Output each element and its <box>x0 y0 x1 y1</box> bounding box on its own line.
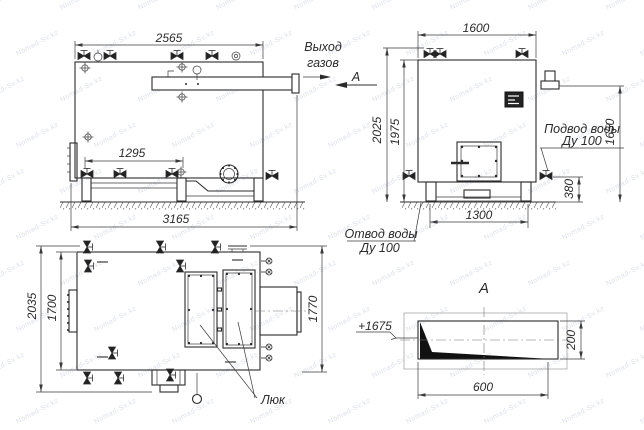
dim-side-height-outer: 2025 <box>370 116 384 144</box>
side-view-linework <box>400 49 559 210</box>
top-view: 2035 1700 1770 Люк <box>25 241 327 407</box>
water-drain-label-line1: Отвод воды <box>344 227 417 241</box>
section-mark-label: А <box>351 70 360 84</box>
dim-top-outer: 2035 <box>25 292 39 320</box>
dim-section-height: 200 <box>564 330 578 351</box>
dim-front-width: 2565 <box>155 31 183 45</box>
hatch-label: Люк <box>260 393 286 407</box>
dim-side-drain-height: 380 <box>562 179 576 199</box>
hatch-cover-right <box>223 270 255 348</box>
dim-top-right: 1770 <box>306 295 320 322</box>
top-view-linework <box>67 241 308 404</box>
gas-outlet-label-line1: Выход <box>304 40 342 54</box>
side-view: 1600 2025 1975 380 1650 1300 П <box>344 21 624 255</box>
drawing-sheet: 2565 1295 3165 Выход газов А <box>0 0 644 430</box>
gas-outlet-label-line2: газов <box>307 56 339 70</box>
water-supply-callout: Подвод воды Ду 100 <box>540 122 624 171</box>
water-drain-label-line2: Ду 100 <box>358 241 400 255</box>
dim-side-base: 1300 <box>466 208 493 222</box>
front-view: 2565 1295 3165 Выход газов А <box>60 31 377 231</box>
dim-front-span: 1295 <box>119 146 146 160</box>
elevation-mark-label: +1675 <box>358 319 392 333</box>
gas-outlet-callout: Выход газов А <box>303 40 377 88</box>
dim-side-width: 1600 <box>463 21 490 35</box>
section-a-view: А 200 600 +1675 <box>356 280 585 399</box>
dim-section-width: 600 <box>473 380 493 394</box>
gas-flow-arrow-icon <box>320 75 331 80</box>
hatch-cover-left <box>185 272 217 347</box>
section-dimensions: 200 600 <box>418 321 585 399</box>
front-view-linework <box>60 50 305 210</box>
elevation-callout: +1675 <box>356 319 418 340</box>
water-drain-callout: Отвод воды Ду 100 <box>344 203 421 255</box>
section-view-title: А <box>478 280 489 297</box>
dim-front-overall: 3165 <box>163 212 190 226</box>
dim-side-height-inner: 1975 <box>388 118 402 145</box>
boiler-technical-drawing: Nomad-Sv.kzNomad-Sv.kzNomad-Sv.kzNomad-S… <box>0 0 644 430</box>
dim-top-inner: 1700 <box>45 294 59 321</box>
section-view-arrow-icon <box>335 82 347 88</box>
water-supply-label-line2: Ду 100 <box>560 134 602 148</box>
